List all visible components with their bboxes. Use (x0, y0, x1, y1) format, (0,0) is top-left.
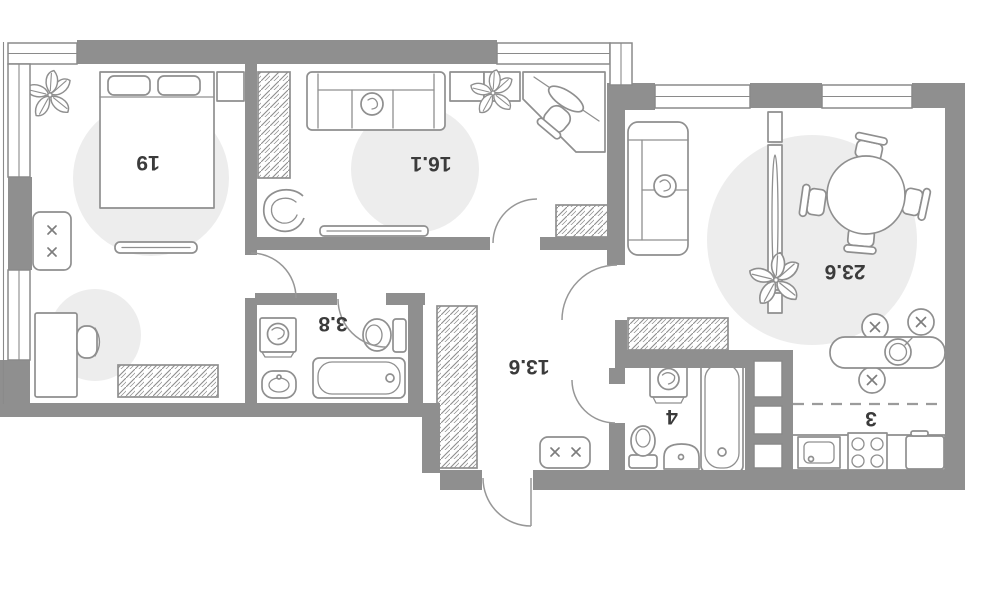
vent-shaft (754, 361, 782, 397)
dresser (33, 212, 71, 270)
wall (0, 360, 30, 405)
sofa (628, 122, 688, 255)
window (655, 85, 750, 108)
room-label-kitchen-zone: 3 (865, 407, 877, 430)
bathroom-sink (664, 444, 699, 469)
door-arc-kitchen-living (562, 265, 617, 320)
washing-machine (650, 363, 687, 403)
wardrobe-hatched (258, 72, 290, 178)
wall (440, 470, 482, 490)
wall (607, 83, 655, 110)
stove (848, 433, 887, 470)
bathroom-sink (262, 371, 296, 398)
wall (607, 110, 625, 265)
desk (35, 313, 77, 397)
window (8, 43, 77, 64)
sideboard-hatched (628, 318, 728, 350)
room-label-bathroom-small: 3.8 (318, 312, 348, 335)
wall (540, 237, 610, 250)
window (8, 270, 30, 360)
wall (609, 423, 625, 473)
wall (386, 293, 425, 305)
wall (615, 320, 627, 352)
washing-machine (260, 318, 296, 357)
door-arc-living-room (493, 199, 537, 243)
bar-stool (862, 314, 888, 340)
bar-stool (859, 367, 885, 393)
wall (408, 305, 423, 405)
vent-shafts (754, 361, 782, 468)
bathtub (701, 360, 743, 472)
window (610, 43, 632, 85)
hall-bench (540, 437, 590, 468)
plant-icon (24, 69, 73, 119)
dining-table (827, 156, 905, 234)
room-label-bedroom: 19 (136, 151, 159, 174)
tv-console (320, 226, 428, 236)
wall (912, 83, 965, 108)
wall (533, 470, 965, 490)
wall (945, 107, 965, 490)
door-arc-entrance (483, 478, 531, 526)
wall-pier (8, 177, 32, 270)
vent-shaft (754, 406, 782, 434)
kitchen-sink (798, 437, 840, 468)
armchair (264, 190, 304, 232)
sofa (307, 72, 445, 130)
door-arc-bathroom (572, 380, 615, 423)
window (822, 85, 912, 108)
shoe-shelf-hatched (556, 205, 608, 237)
bathtub (313, 358, 405, 398)
wall (245, 298, 257, 405)
door-arc-bedroom (251, 253, 296, 298)
fridge (906, 431, 944, 469)
dining-chair (799, 184, 827, 219)
vent-shaft (754, 444, 782, 468)
desk-chair (77, 326, 100, 358)
wall (0, 403, 422, 417)
wall (257, 237, 490, 250)
floor-plan-page: 19 16.1 23.6 3.8 13.6 4 3 (0, 0, 1000, 600)
wall (750, 83, 822, 108)
room-label-bathroom: 4 (666, 405, 678, 428)
hall-closet-hatched (437, 306, 477, 468)
room-label-kitchen-living: 23.6 (825, 260, 866, 283)
nightstand (217, 72, 244, 101)
double-bed (100, 72, 214, 208)
room-label-hallway: 13.6 (509, 355, 550, 378)
bedside-rug (115, 242, 197, 253)
room-label-living-room: 16.1 (410, 152, 451, 175)
floor-plan: 19 16.1 23.6 3.8 13.6 4 3 (0, 0, 1000, 600)
kitchen-island (830, 337, 945, 368)
window (8, 64, 30, 177)
wall (422, 403, 440, 473)
wall (609, 368, 625, 384)
bar-stool (908, 309, 934, 335)
wall (245, 64, 257, 255)
wall (77, 40, 497, 64)
window (497, 43, 610, 64)
kitchen-counter (792, 431, 945, 470)
toilet (629, 426, 657, 468)
wardrobe-hatched (118, 365, 218, 397)
